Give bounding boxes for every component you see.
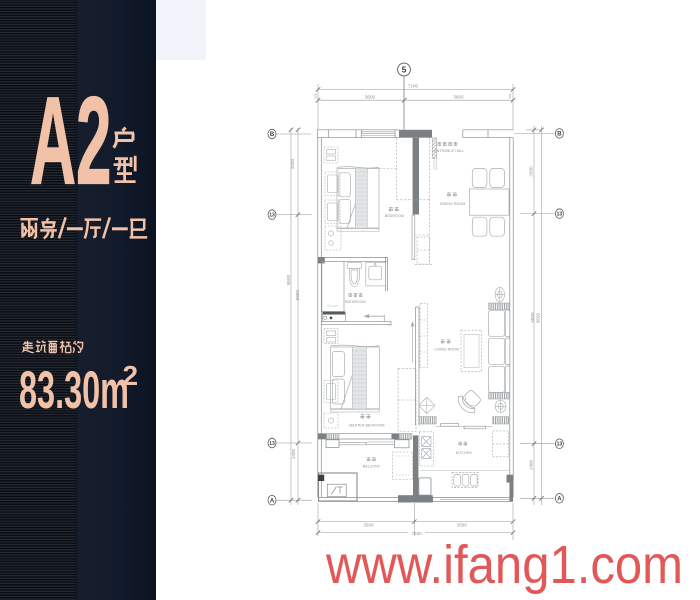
svg-text:BATHROOM: BATHROOM	[345, 300, 366, 304]
svg-text:9500: 9500	[286, 274, 291, 285]
svg-text:2050: 2050	[528, 166, 533, 177]
svg-text:DINING ROOM: DINING ROOM	[440, 202, 465, 206]
svg-text:7200: 7200	[408, 83, 419, 88]
svg-text:LIVING ROOM: LIVING ROOM	[435, 347, 460, 351]
svg-text:A: A	[557, 497, 562, 503]
svg-text:BALCONY: BALCONY	[363, 465, 381, 469]
svg-text:BEDROOM: BEDROOM	[385, 214, 404, 218]
svg-text:1400: 1400	[529, 459, 534, 470]
svg-text:3600: 3600	[365, 95, 376, 100]
svg-text:5850: 5850	[530, 312, 535, 323]
svg-text:83.30m: 83.30m	[19, 361, 129, 420]
svg-text:MASTER BEDROOM: MASTER BEDROOM	[349, 423, 384, 427]
svg-text:Shower: Shower	[327, 304, 339, 308]
svg-text:5850: 5850	[295, 289, 300, 300]
svg-text:3500: 3500	[457, 523, 468, 528]
svg-text:13: 13	[557, 442, 563, 448]
svg-text:3500: 3500	[363, 523, 374, 528]
svg-text:5: 5	[402, 64, 407, 74]
svg-text:600: 600	[314, 93, 318, 98]
svg-text:A: A	[270, 498, 275, 504]
svg-text:A2: A2	[30, 73, 112, 211]
svg-text:ENTRANCE HALL: ENTRANCE HALL	[434, 149, 464, 153]
svg-text:13: 13	[269, 213, 275, 219]
svg-text:3600: 3600	[453, 95, 464, 100]
svg-text:1400: 1400	[291, 448, 296, 459]
svg-text:2: 2	[123, 360, 139, 391]
svg-text:9500: 9500	[535, 312, 540, 323]
svg-text:13: 13	[269, 441, 275, 447]
svg-text:2050: 2050	[290, 158, 295, 169]
svg-text:B: B	[557, 132, 562, 138]
svg-text:13: 13	[557, 212, 563, 218]
svg-text:www.ifang1.com: www.ifang1.com	[325, 535, 683, 595]
svg-text:B: B	[270, 132, 275, 138]
svg-text:KITCHEN: KITCHEN	[456, 451, 472, 455]
svg-text:600: 600	[508, 93, 512, 98]
